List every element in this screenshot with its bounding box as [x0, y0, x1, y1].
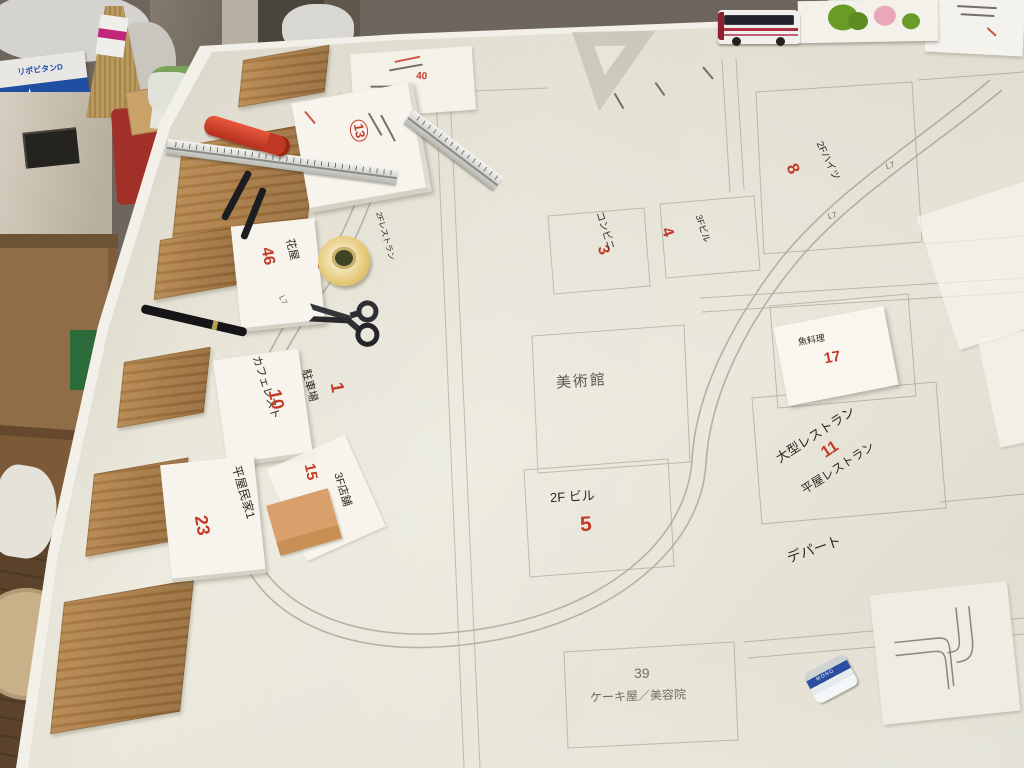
museum-label: 美術館: [556, 372, 608, 391]
handwriting-scribble: [957, 5, 997, 9]
plot39-number: 39: [634, 666, 650, 681]
broom-tag-band: [98, 28, 127, 41]
masking-tape-roll: [318, 236, 370, 286]
wood-panel: [50, 579, 194, 734]
bus-stripe: [720, 28, 798, 31]
handwriting-scribble-red: [394, 56, 420, 63]
bldg2f-number: 5: [579, 514, 592, 537]
handwriting-scribble: [960, 13, 994, 17]
cafe-number: 10: [265, 388, 288, 412]
pink-blob: [874, 6, 896, 26]
appliance-slot: [22, 127, 79, 168]
broom-tag: [95, 14, 128, 58]
bus-wheel: [732, 37, 741, 46]
bus-stripe: [720, 34, 798, 36]
foam-card: [291, 82, 431, 213]
hiraya-number: 23: [191, 514, 213, 537]
bus-front: [718, 12, 724, 40]
photo-model-railway-planning-board: リポビタンD: [0, 0, 1024, 768]
toy-bus: [718, 10, 800, 44]
bus-wheel: [776, 37, 785, 46]
bldg2f-label: 2F ビル: [550, 489, 595, 505]
handwriting-scribble: [380, 114, 396, 141]
tree-blob: [848, 12, 868, 30]
battery-label: MONO: [815, 668, 835, 682]
shop3f-number: 15: [301, 462, 320, 482]
tree-blob: [902, 13, 920, 29]
fish-number: 17: [823, 349, 842, 367]
paper40-number: 40: [416, 72, 427, 83]
road-sketch: [870, 581, 1021, 725]
scenery-strip: [798, 0, 939, 43]
bus-windows: [724, 15, 794, 25]
road-sketch-paper: [870, 581, 1021, 725]
handwriting-scribble-red: [304, 111, 316, 125]
tape-roll-hole: [332, 247, 356, 269]
hanaya-number: 46: [257, 246, 277, 266]
handwriting-scribble-red: [987, 27, 997, 37]
notes-paper: [925, 0, 1024, 57]
